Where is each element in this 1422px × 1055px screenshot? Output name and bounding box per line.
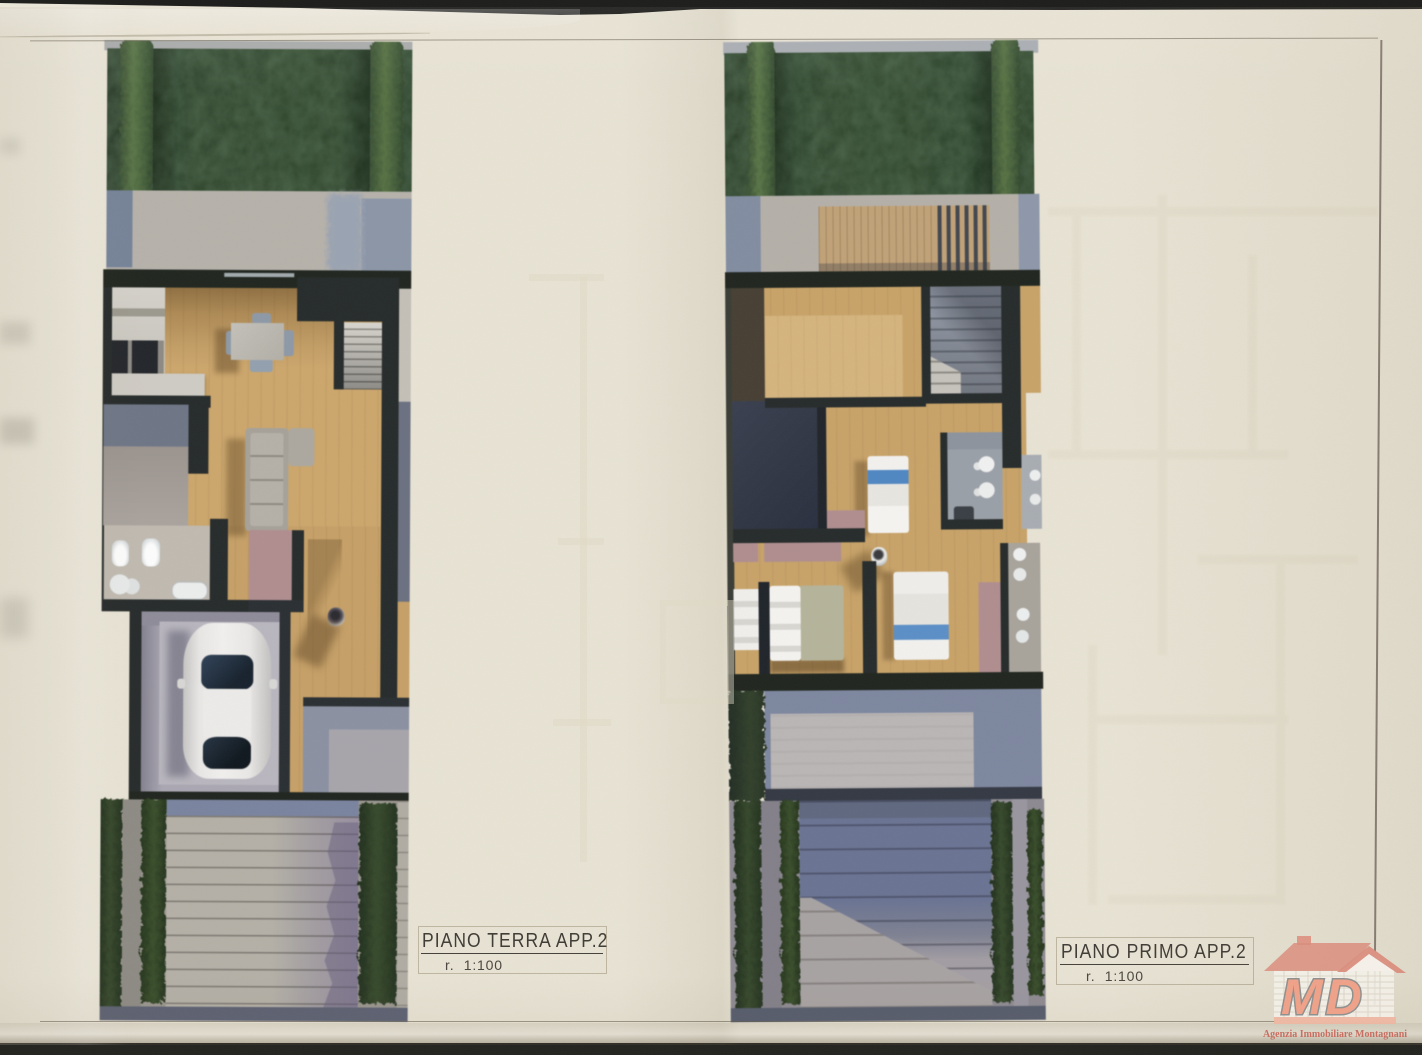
svg-text:MD: MD [1281, 969, 1365, 1025]
svg-text:Agenzia Immobiliare Montagnani: Agenzia Immobiliare Montagnani [1263, 1029, 1407, 1040]
